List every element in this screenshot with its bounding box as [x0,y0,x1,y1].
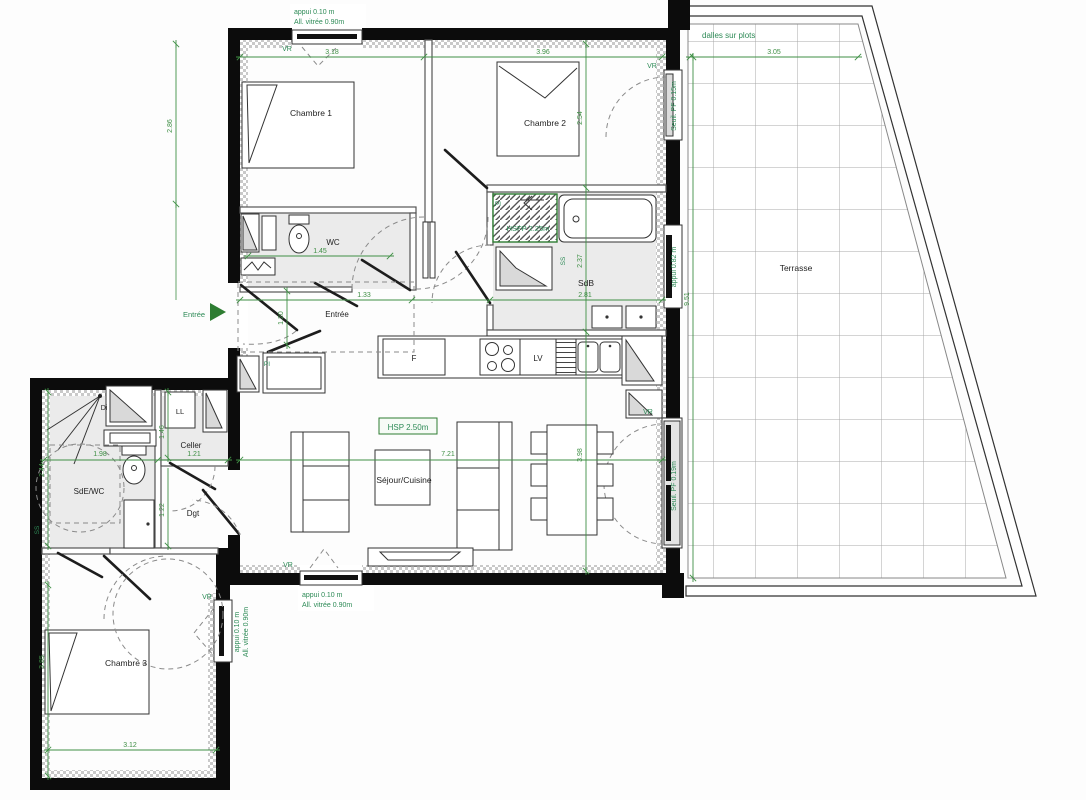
cooktop [480,339,520,375]
bed-chambre3 [45,630,149,714]
label-entree-arrow: Entrée [183,310,205,319]
label-vr-chambre2: VR [647,63,657,70]
label-vr-chambre3: VR [202,594,212,601]
label-allege-chambre3: All. vitrée 0.90m [243,607,250,657]
dim-chambre3-h: 3.85 [39,655,46,669]
label-wc: WC [326,238,340,247]
dim-sejour-w: 7.21 [441,451,455,458]
dining-table [531,425,613,535]
dim-sde-h: 2.44 [39,463,46,477]
label-chambre2: Chambre 2 [524,118,566,128]
label-seuil-pf-015: Seuil. PF 0.15m [671,81,678,131]
dim-celler-h: 1.46 [159,425,166,439]
floorplan-page: Chambre 1 Chambre 2 Chambre 3 WC SdB SdE… [0,0,1086,800]
label-appui-010-chambre3: appui 0.10 m [234,612,241,653]
label-hsfp: HSFP 2.25m [507,224,550,233]
label-sdb: SdB [578,278,594,288]
label-entree-hall: Entrée [325,310,349,319]
label-sejour-cuisine: Séjour/Cuisine [376,475,432,485]
dim-chambre2-w: 3.96 [536,49,550,56]
terrace [686,6,1036,596]
label-ss-sde: SS [34,525,41,534]
label-appui-010-top: appui 0.10 m [294,9,335,16]
dim-sejour-h: 3.98 [577,448,584,462]
label-pi-entree: PI [264,361,270,368]
label-appui-082: appui 0.82 m [671,247,678,288]
label-dalles-sur-plots: dalles sur plots [702,31,755,40]
terrace-tiles [688,24,1006,578]
shower [493,194,557,242]
dim-sdb-w: 2.81 [578,292,592,299]
bed-chambre2 [497,62,579,156]
label-ss-sdb: SS [560,256,567,265]
label-seuil-pf-019: Seuil. PF 0.19m [671,461,678,511]
label-allege-bottom: All. vitrée 0.90m [302,602,352,609]
label-di: Di [101,405,108,412]
dim-terrasse-w: 3.05 [767,49,781,56]
label-fridge: F [412,354,417,363]
dim-celler-w: 1.21 [187,451,201,458]
entrance-arrow-icon [210,303,226,321]
dim-sdb-h: 2.37 [577,254,584,268]
entree-closets [237,353,325,393]
label-vr-bottom: VR [283,562,293,569]
bed-chambre1 [242,82,354,168]
label-pi-sdb: PI [495,201,501,208]
label-chambre1: Chambre 1 [290,108,332,118]
dim-chambre1-w: 3.18 [325,49,339,56]
dim-dgt-h: 1.22 [159,503,166,517]
dim-chambre1-h: 2.86 [167,119,174,133]
dim-sde-w: 1.98 [93,451,107,458]
dim-terrasse-h: 9.51 [684,292,691,306]
label-allege-top: All. vitrée 0.90m [294,19,344,26]
sideboard [457,422,512,550]
tv-stand [368,548,473,566]
label-washing-machine: LL [176,407,184,416]
label-vr-sejour: VR [643,409,653,416]
floorplan-drawing: Chambre 1 Chambre 2 Chambre 3 WC SdB SdE… [0,0,1086,800]
dim-wc-w: 1.45 [313,248,327,255]
dim-entree-h: 1.20 [278,311,285,325]
label-celler: Celler [181,441,202,450]
label-terrasse: Terrasse [780,263,813,273]
label-dgt: Dgt [187,509,200,518]
label-chambre3: Chambre 3 [105,658,147,668]
kitchen-sink [576,339,622,375]
label-sde-wc: SdE/WC [74,487,105,496]
label-dishwasher: LV [533,354,543,363]
dim-chambre2-h: 2.54 [577,111,584,125]
kitchen-fixtures [378,336,662,418]
label-hsp: HSP 2.50m [388,423,429,432]
dim-hall-w: 1.33 [357,292,371,299]
label-appui-010-bottom: appui 0.10 m [302,592,343,599]
sofa [291,432,349,532]
dim-chambre3-w: 3.12 [123,742,137,749]
drainer [556,339,576,375]
label-vr-top: VR [282,46,292,53]
